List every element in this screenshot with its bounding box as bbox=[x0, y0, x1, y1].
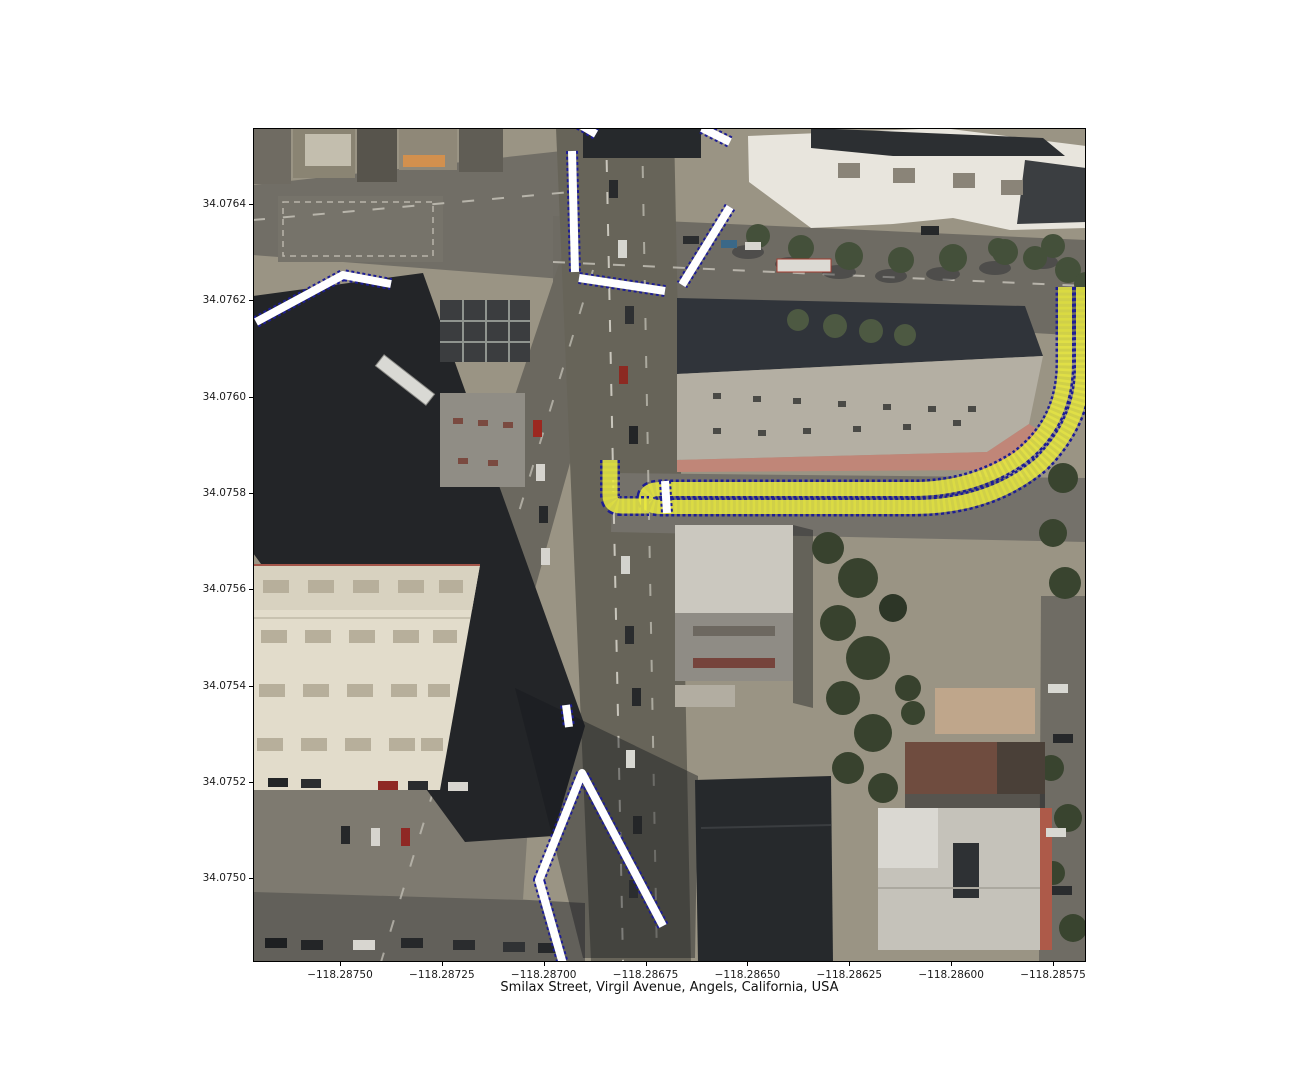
y-tick-label: 34.0756 bbox=[61, 582, 246, 596]
route-start-marker bbox=[665, 481, 667, 513]
y-tick-label: 34.0760 bbox=[61, 390, 246, 404]
y-tick-label: 34.0752 bbox=[61, 775, 246, 789]
x-tick-mark bbox=[646, 962, 647, 966]
building-pink-trim bbox=[677, 298, 1045, 472]
figure: 34.076434.076234.076034.075834.075634.07… bbox=[0, 0, 1303, 1080]
y-tick-mark bbox=[249, 493, 253, 494]
y-tick-label: 34.0758 bbox=[61, 486, 246, 500]
crosswalk-middle-dash bbox=[566, 705, 569, 727]
y-tick-mark bbox=[249, 878, 253, 879]
plot-area bbox=[253, 128, 1086, 962]
y-tick-mark bbox=[249, 397, 253, 398]
y-tick-label: 34.0762 bbox=[61, 293, 246, 307]
y-tick-mark bbox=[249, 300, 253, 301]
y-tick-label: 34.0754 bbox=[61, 679, 246, 693]
y-tick-mark bbox=[249, 589, 253, 590]
x-axis-label: Smilax Street, Virgil Avenue, Angels, Ca… bbox=[253, 980, 1086, 996]
x-tick-mark bbox=[747, 962, 748, 966]
x-tick-mark bbox=[1053, 962, 1054, 966]
y-tick-mark bbox=[249, 686, 253, 687]
y-tick-label: 34.0764 bbox=[61, 197, 246, 211]
y-tick-label: 34.0750 bbox=[61, 871, 246, 885]
crosswalk-north-vertical bbox=[572, 151, 575, 272]
x-tick-mark bbox=[951, 962, 952, 966]
building-mid-gray bbox=[440, 393, 525, 487]
building-beige-west bbox=[253, 565, 480, 790]
building-skylight-grid bbox=[440, 300, 530, 362]
y-tick-mark bbox=[249, 782, 253, 783]
x-tick-mark bbox=[849, 962, 850, 966]
map bbox=[253, 128, 1086, 962]
building-top-right bbox=[748, 128, 1086, 230]
x-tick-mark bbox=[544, 962, 545, 966]
x-tick-mark bbox=[442, 962, 443, 966]
scene bbox=[253, 128, 1086, 962]
y-tick-mark bbox=[249, 204, 253, 205]
x-tick-mark bbox=[340, 962, 341, 966]
building-center bbox=[675, 525, 813, 708]
